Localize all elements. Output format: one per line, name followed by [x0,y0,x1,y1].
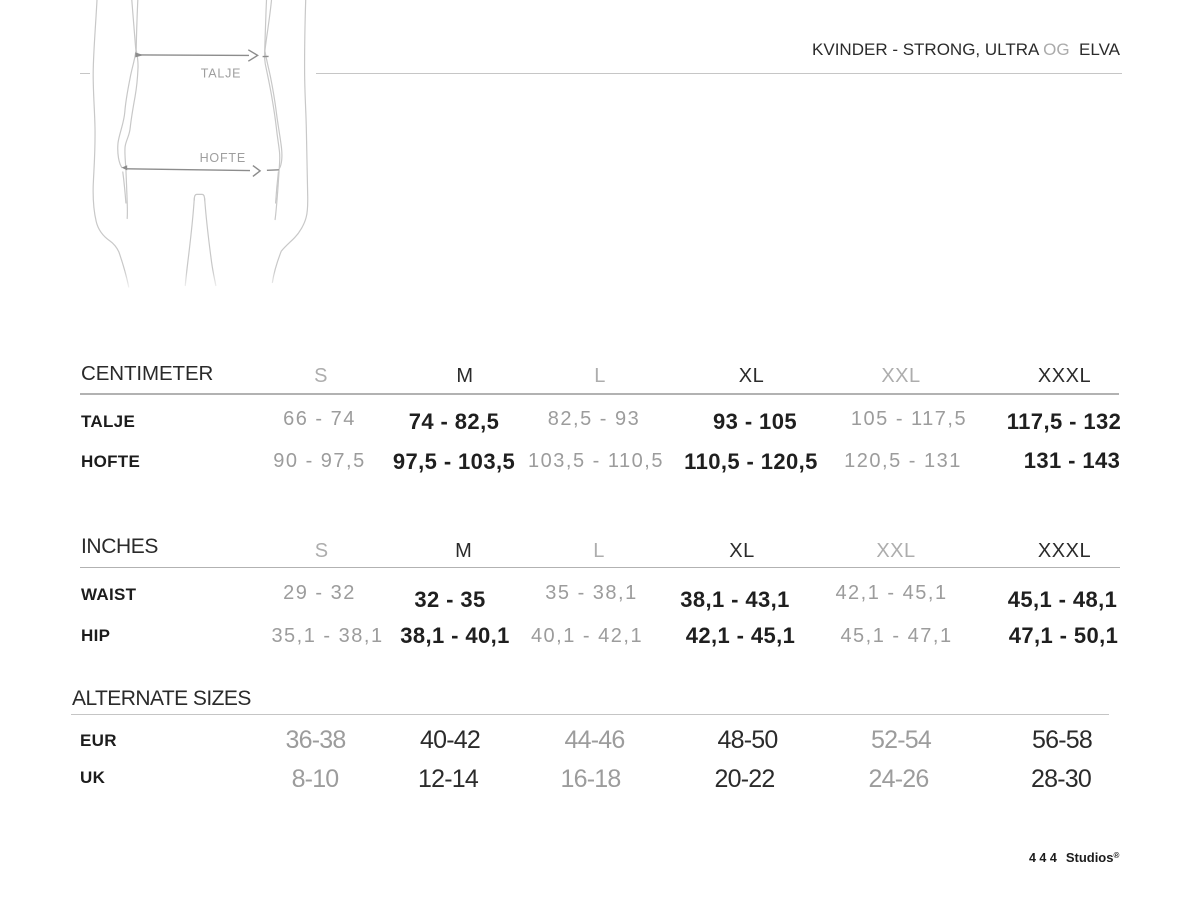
svg-text:TALJE: TALJE [201,67,242,81]
svg-text:HOFTE: HOFTE [200,151,246,165]
